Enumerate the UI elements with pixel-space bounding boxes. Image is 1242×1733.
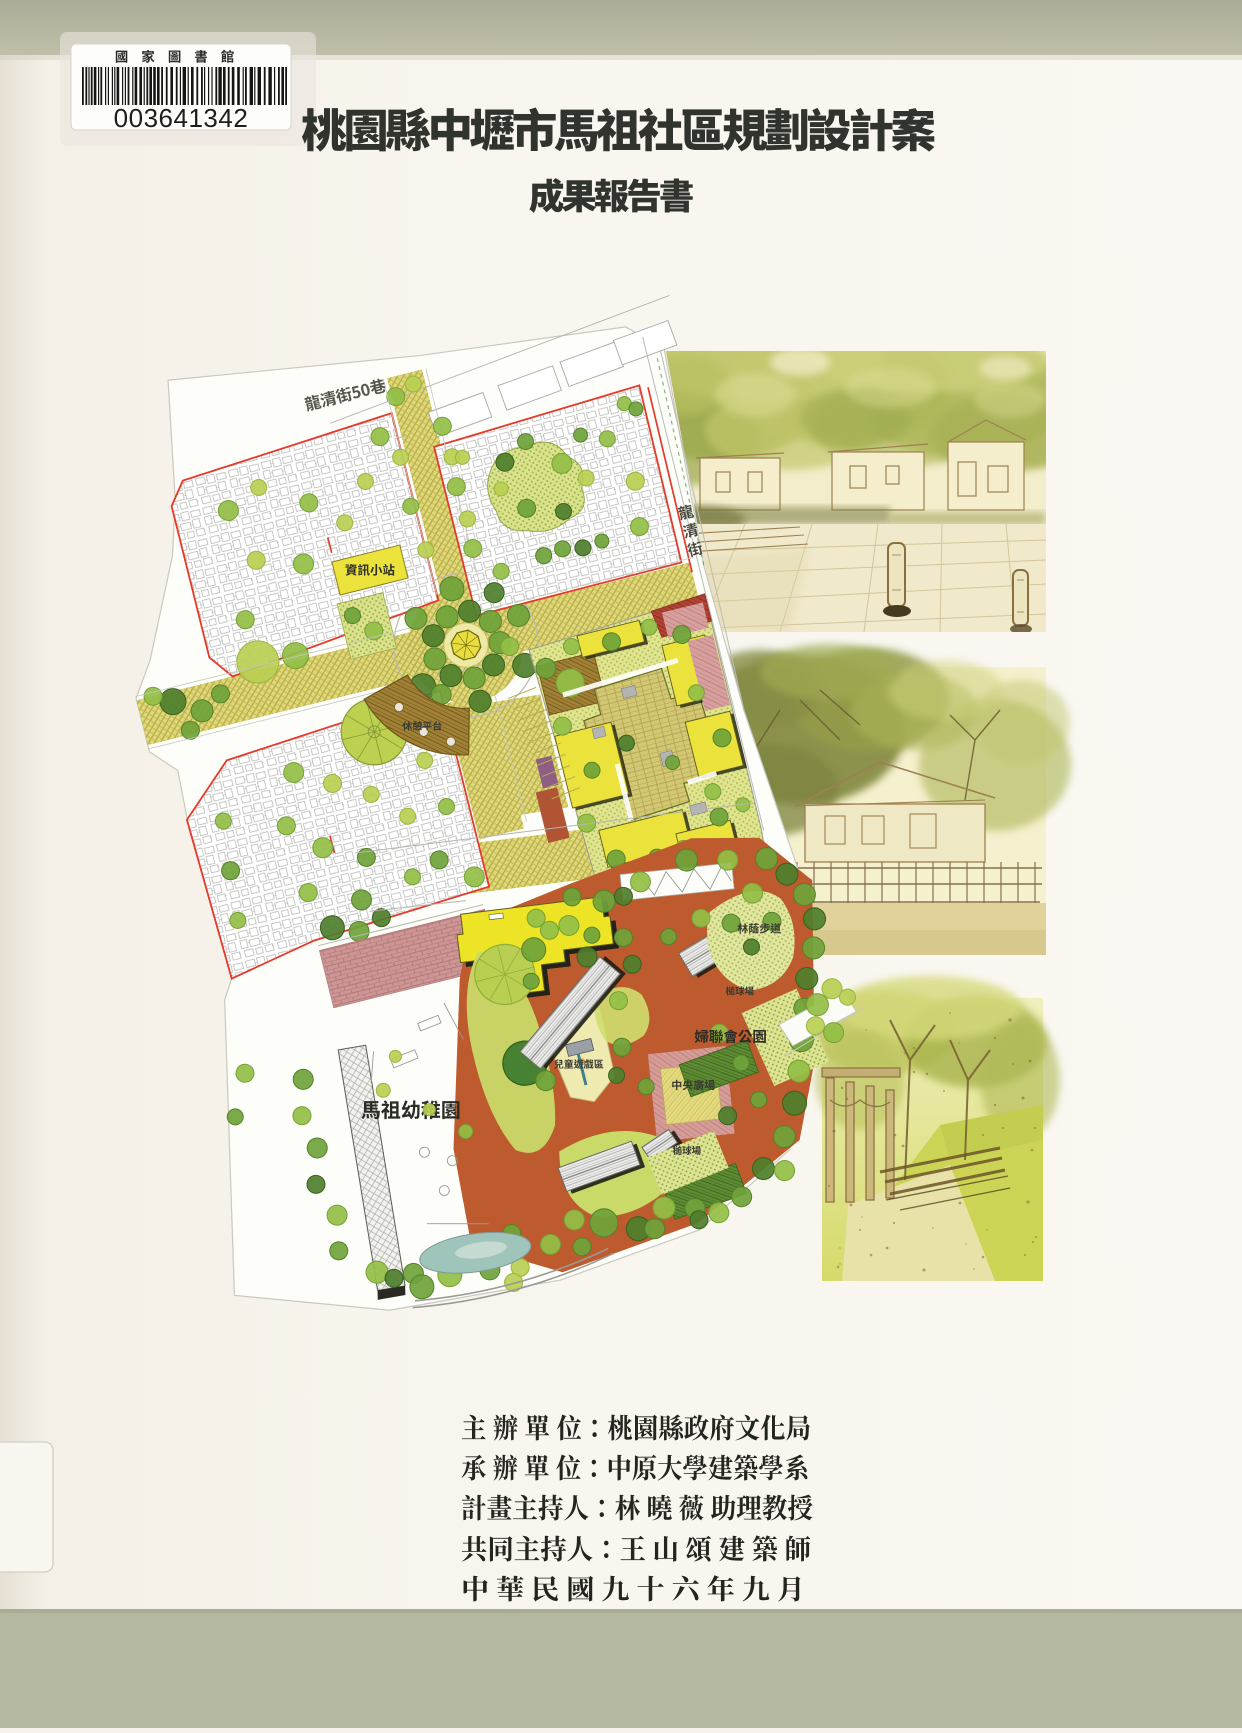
svg-text:003641342: 003641342 bbox=[114, 103, 249, 133]
